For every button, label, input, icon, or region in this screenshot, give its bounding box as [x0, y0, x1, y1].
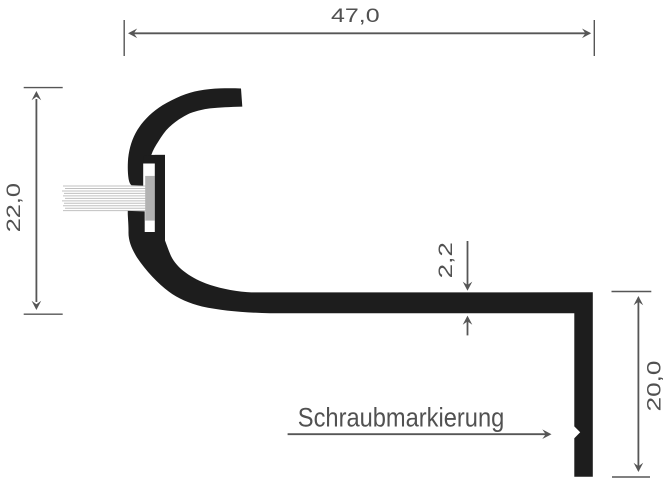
svg-text:22,0: 22,0 — [3, 183, 25, 233]
svg-text:Schraubmarkierung: Schraubmarkierung — [298, 402, 505, 432]
svg-text:2,2: 2,2 — [435, 242, 457, 278]
svg-text:20,0: 20,0 — [644, 360, 666, 411]
svg-text:47,0: 47,0 — [331, 5, 380, 27]
